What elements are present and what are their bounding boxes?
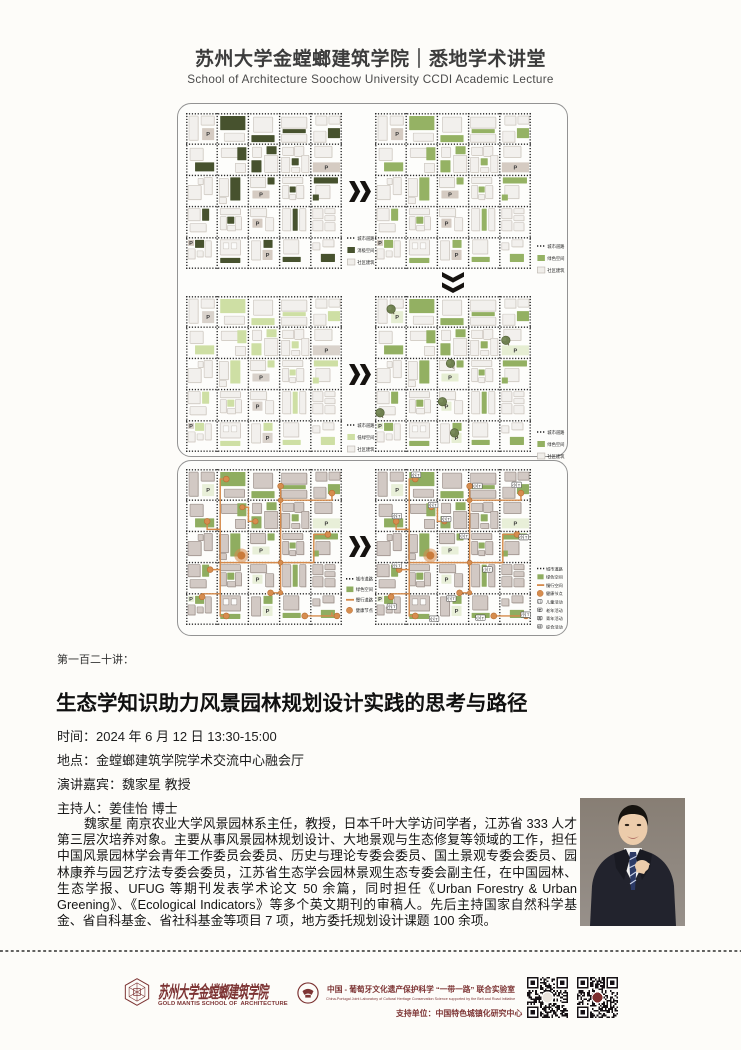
svg-text:小: 小 xyxy=(521,611,525,617)
svg-text:健康节点: 健康节点 xyxy=(546,590,563,597)
svg-text:小: 小 xyxy=(412,471,416,477)
svg-text:小: 小 xyxy=(476,614,480,620)
svg-text:综: 综 xyxy=(538,624,542,629)
svg-text:P: P xyxy=(259,549,263,555)
svg-text:社区建筑: 社区建筑 xyxy=(357,446,375,453)
svg-text:P: P xyxy=(448,376,452,382)
svg-text:P: P xyxy=(395,132,399,138)
svg-text:P: P xyxy=(455,609,459,615)
svg-text:P: P xyxy=(325,165,329,171)
svg-text:小: 小 xyxy=(519,534,523,540)
svg-text:P: P xyxy=(448,549,452,555)
svg-text:P: P xyxy=(256,404,260,410)
svg-text:P: P xyxy=(256,221,260,227)
svg-text:P: P xyxy=(325,348,329,354)
svg-text:P: P xyxy=(256,577,260,583)
svg-text:社区建筑: 社区建筑 xyxy=(547,267,565,274)
svg-text:P: P xyxy=(189,597,193,603)
svg-text:老: 老 xyxy=(538,607,542,612)
svg-text:城市道路: 城市道路 xyxy=(357,422,375,429)
svg-text:慢行空间: 慢行空间 xyxy=(546,582,563,589)
svg-text:P: P xyxy=(206,132,210,138)
svg-text:小: 小 xyxy=(473,482,477,488)
svg-text:P: P xyxy=(259,376,263,382)
svg-text:P: P xyxy=(206,488,210,494)
svg-text:慢行道路: 慢行道路 xyxy=(356,597,374,604)
svg-text:老年活动: 老年活动 xyxy=(546,607,563,614)
svg-text:P: P xyxy=(455,253,459,259)
svg-text:绿色空间: 绿色空间 xyxy=(547,255,564,262)
svg-text:P: P xyxy=(448,193,452,199)
svg-text:城市道路: 城市道路 xyxy=(546,565,564,572)
svg-text:P: P xyxy=(514,165,518,171)
svg-text:绿色空间: 绿色空间 xyxy=(546,574,563,581)
svg-text:城市道路: 城市道路 xyxy=(356,576,374,583)
svg-text:儿: 儿 xyxy=(538,599,542,604)
svg-text:P: P xyxy=(395,488,399,494)
svg-text:P: P xyxy=(266,609,270,615)
svg-text:小: 小 xyxy=(483,566,487,572)
svg-text:小: 小 xyxy=(429,502,433,508)
svg-text:城市道路: 城市道路 xyxy=(547,243,565,250)
svg-text:P: P xyxy=(514,348,518,354)
svg-text:社区建筑: 社区建筑 xyxy=(547,453,565,460)
svg-text:儿童活动: 儿童活动 xyxy=(546,598,563,605)
svg-text:小: 小 xyxy=(460,533,464,539)
svg-text:综合活动: 综合活动 xyxy=(546,623,563,630)
svg-text:健康节点: 健康节点 xyxy=(356,607,374,614)
svg-text:小: 小 xyxy=(512,481,516,487)
svg-text:绿色空间: 绿色空间 xyxy=(547,441,564,448)
svg-text:P: P xyxy=(325,521,329,527)
svg-text:小: 小 xyxy=(447,595,451,601)
svg-text:小: 小 xyxy=(393,562,397,568)
svg-text:低绿空间: 低绿空间 xyxy=(357,434,374,441)
svg-text:消极空间: 消极空间 xyxy=(357,247,374,254)
svg-text:P: P xyxy=(259,193,263,199)
svg-text:绿色空间: 绿色空间 xyxy=(356,586,373,593)
svg-text:P: P xyxy=(445,577,449,583)
svg-text:P: P xyxy=(206,315,210,321)
svg-text:P: P xyxy=(189,241,193,247)
svg-text:青: 青 xyxy=(538,616,542,621)
svg-text:P: P xyxy=(266,253,270,259)
svg-text:P: P xyxy=(514,521,518,527)
svg-text:P: P xyxy=(445,221,449,227)
svg-text:小: 小 xyxy=(393,513,397,519)
svg-text:小: 小 xyxy=(442,516,446,522)
svg-text:城市道路: 城市道路 xyxy=(547,429,565,436)
svg-text:P: P xyxy=(395,315,399,321)
svg-text:城市道路: 城市道路 xyxy=(357,235,375,242)
svg-text:社区建筑: 社区建筑 xyxy=(357,259,375,266)
svg-text:青年活动: 青年活动 xyxy=(546,615,563,622)
svg-text:小: 小 xyxy=(430,615,434,621)
svg-text:P: P xyxy=(189,424,193,430)
svg-text:P: P xyxy=(266,436,270,442)
